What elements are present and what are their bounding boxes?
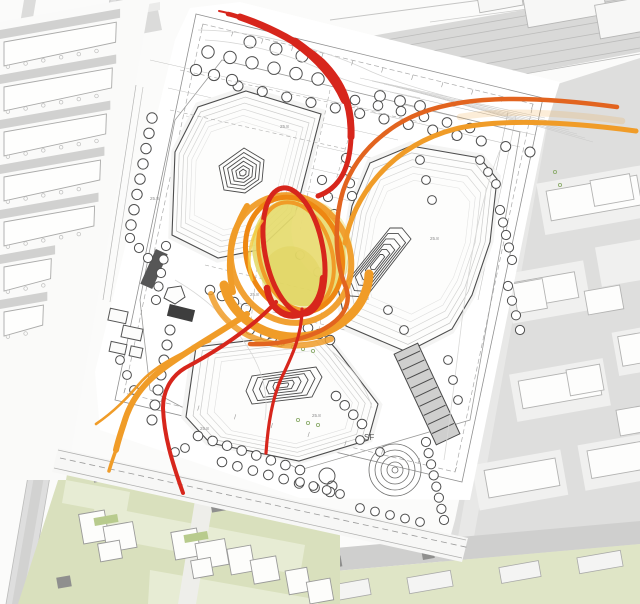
svg-text:25.8: 25.8 bbox=[200, 426, 209, 431]
svg-text:25.8: 25.8 bbox=[150, 196, 159, 201]
svg-text:25.8: 25.8 bbox=[312, 413, 321, 418]
svg-text:25.8: 25.8 bbox=[430, 236, 439, 241]
svg-text:25.8: 25.8 bbox=[250, 292, 259, 297]
svg-text:SF: SF bbox=[364, 433, 374, 442]
svg-text:25.8: 25.8 bbox=[280, 124, 289, 129]
